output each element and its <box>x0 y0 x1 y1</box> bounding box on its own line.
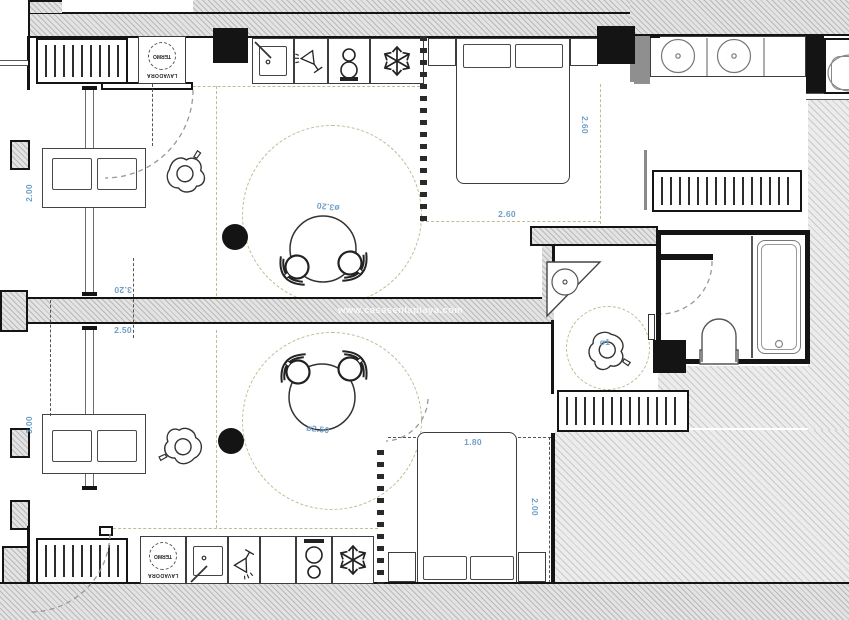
window-cap <box>82 486 97 490</box>
mid-divider-wall <box>0 297 554 324</box>
kitchen-sink-basin-lower <box>193 546 223 576</box>
dimension-label-shower-circle: ø1 <box>596 337 614 347</box>
person-figure <box>158 424 205 470</box>
left-wall-block-upper <box>10 140 30 170</box>
radiator-kitchen-lower <box>36 538 128 584</box>
vanity-top-wall <box>630 0 849 36</box>
vanity-counter <box>650 36 806 77</box>
window-cap <box>82 326 97 330</box>
window-cap <box>82 292 97 296</box>
bedroom-zone-dash-bottom-upper <box>421 221 601 222</box>
partition-dots-upper <box>420 36 427 228</box>
shower-left-wall-lower <box>551 320 554 394</box>
edge-fixture-basin <box>831 56 849 90</box>
stove-bar-upper <box>340 77 358 81</box>
floor-plan: LAVADORA TERMO LAVADORA TERMO <box>0 0 849 620</box>
bathroom-divider-wall <box>751 236 753 358</box>
bathtub-inner <box>761 244 797 350</box>
shower-left-wall <box>552 246 555 302</box>
dimension-label-upper-room-width: 3.20 <box>108 285 138 295</box>
water-heater-label: TERMO <box>148 42 176 70</box>
washer-heater-unit-upper: LAVADORA TERMO <box>138 36 186 84</box>
shower-door-leaf <box>648 314 655 340</box>
hall-top-wall <box>530 226 658 246</box>
bottom-right-exterior <box>555 430 849 582</box>
radiator-shower-room <box>557 390 689 432</box>
shower-turning-circle <box>566 306 650 390</box>
column-shower <box>653 340 686 373</box>
vanity-right-wall <box>806 36 824 94</box>
radiator-fins <box>566 397 680 425</box>
sofa-cushion <box>97 158 137 190</box>
water-heater-label: TERMO <box>149 542 177 570</box>
watermark: www.casasenlaplaya.com <box>338 305 463 316</box>
lower-bedroom-right-wall <box>551 433 555 583</box>
sofa-cushion <box>52 158 92 190</box>
left-wall-segment-b <box>27 526 30 584</box>
nightstand-lower-right <box>518 552 546 582</box>
washer-label: LAVADORA <box>147 72 178 78</box>
bedroom-zone-dash-right-lower <box>549 437 550 583</box>
round-column-lower <box>218 428 244 454</box>
zone-dash-vertical-lower <box>216 330 217 528</box>
kitchen-sink-basin-upper <box>259 46 287 76</box>
top-wall-band <box>28 12 660 38</box>
projection-line <box>152 84 153 146</box>
nightstand-upper-right <box>570 38 598 66</box>
column-bedroom-upper <box>597 26 635 64</box>
mid-divider-left-block <box>0 290 28 332</box>
radiator-fins <box>45 545 119 577</box>
window-cap <box>82 86 97 90</box>
zone-dash-horizontal-lower <box>108 528 378 529</box>
washer-heater-unit-lower: LAVADORA TERMO <box>140 536 186 584</box>
fridge-lower <box>332 536 374 584</box>
pillow <box>470 556 514 580</box>
projection-line <box>50 300 51 416</box>
partition-dots-lower <box>377 450 384 584</box>
dimension-label-upper-bed-depth: 2.60 <box>580 110 590 140</box>
column-kitchen-upper <box>213 28 248 63</box>
right-window <box>806 93 849 100</box>
nightstand-lower-left <box>388 552 416 582</box>
sofa-cushion <box>52 430 92 462</box>
zone-dash-vertical-upper <box>216 86 217 296</box>
right-exterior-strip <box>808 100 849 430</box>
radiator-kitchen-upper <box>36 38 128 84</box>
left-edge-window <box>0 60 28 66</box>
top-left-corner-wall <box>28 0 62 13</box>
bottom-wall-band <box>0 582 849 620</box>
stove-lower <box>296 536 332 584</box>
sofa-cushion <box>97 430 137 462</box>
stove-bar-lower <box>304 539 324 543</box>
vanity-side-window <box>644 150 647 210</box>
dimension-label-lower-bed-width: 1.80 <box>458 437 488 447</box>
dimension-label-upper-bed-width: 2.60 <box>492 209 522 219</box>
person-figure <box>162 150 209 196</box>
dimension-label-lower-living-height: 3.00 <box>24 410 34 440</box>
round-column-upper <box>222 224 248 250</box>
turning-circle-lower <box>242 332 422 510</box>
entry-door-leaf-lower <box>99 526 113 536</box>
radiator-fins <box>45 45 119 77</box>
radiator-fins <box>661 177 793 205</box>
bedroom-zone-dash-right-upper <box>600 84 601 224</box>
dimension-label-upper-living-height: 2.00 <box>24 178 34 208</box>
washer-label: LAVADORA <box>148 572 179 578</box>
pillow <box>515 44 563 68</box>
bathroom-door-leaf <box>661 254 713 260</box>
glass-cabinet-lower <box>228 536 260 584</box>
pillow <box>423 556 467 580</box>
glass-cabinet-upper <box>294 38 328 84</box>
counter-cell-lower <box>260 536 296 584</box>
dimension-label-lower-room-width: 2.50 <box>108 325 138 335</box>
dimension-label-lower-bed-depth: 2.00 <box>530 492 540 522</box>
bottom-left-corner-wall <box>2 546 30 584</box>
pillow <box>463 44 511 68</box>
turning-circle-upper <box>242 125 422 305</box>
radiator-vanity-room <box>652 170 802 212</box>
nightstand-upper-left <box>428 38 456 66</box>
fridge-upper <box>370 38 424 84</box>
